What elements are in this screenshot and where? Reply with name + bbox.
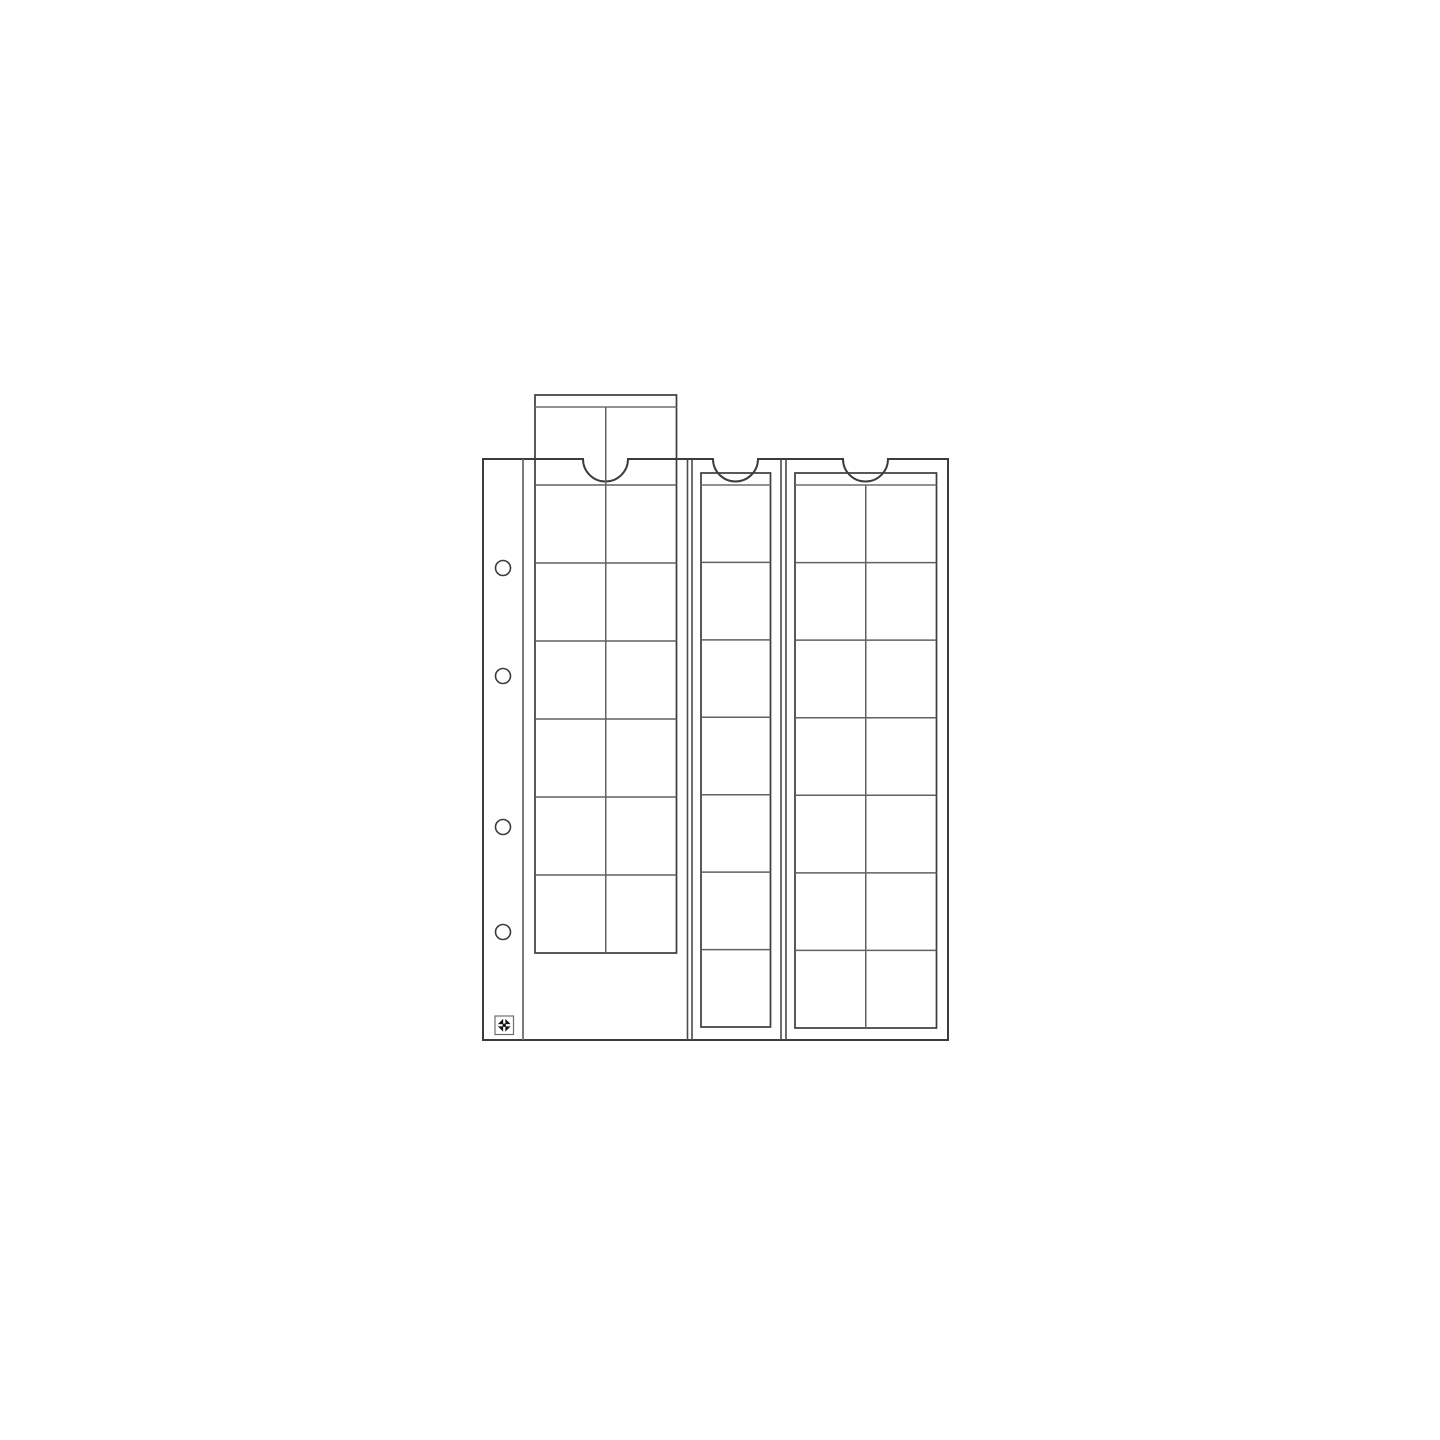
binder-hole (496, 561, 511, 576)
canvas-background (0, 0, 1440, 1440)
maker-logo (495, 1016, 514, 1035)
logo-center-dot (503, 1024, 506, 1027)
binder-hole (496, 925, 511, 940)
coin-sheet-diagram (0, 0, 1440, 1440)
binder-hole (496, 669, 511, 684)
coin-sheet-product-image (0, 0, 1440, 1440)
binder-hole (496, 820, 511, 835)
